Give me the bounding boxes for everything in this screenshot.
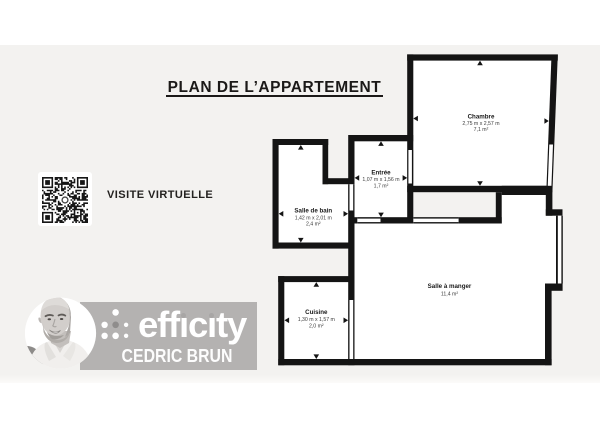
svg-text:2,75 m x 2,57 m: 2,75 m x 2,57 m	[462, 121, 499, 127]
svg-text:2,4 m²: 2,4 m²	[306, 221, 321, 227]
svg-text:2,0 m²: 2,0 m²	[309, 323, 324, 329]
svg-text:1,7 m²: 1,7 m²	[374, 183, 389, 189]
svg-text:Entrée: Entrée	[371, 170, 391, 177]
svg-text:1,07 m x 1,56 m: 1,07 m x 1,56 m	[362, 177, 399, 183]
svg-text:Salle de bain: Salle de bain	[294, 208, 332, 215]
svg-text:Cuisine: Cuisine	[305, 309, 328, 316]
svg-text:Salle à manger: Salle à manger	[428, 283, 472, 290]
svg-text:11,4 m²: 11,4 m²	[441, 292, 458, 298]
svg-text:7,1 m²: 7,1 m²	[474, 127, 489, 133]
svg-text:Chambre: Chambre	[468, 114, 495, 121]
svg-text:1,30 m x 1,57 m: 1,30 m x 1,57 m	[298, 317, 335, 323]
